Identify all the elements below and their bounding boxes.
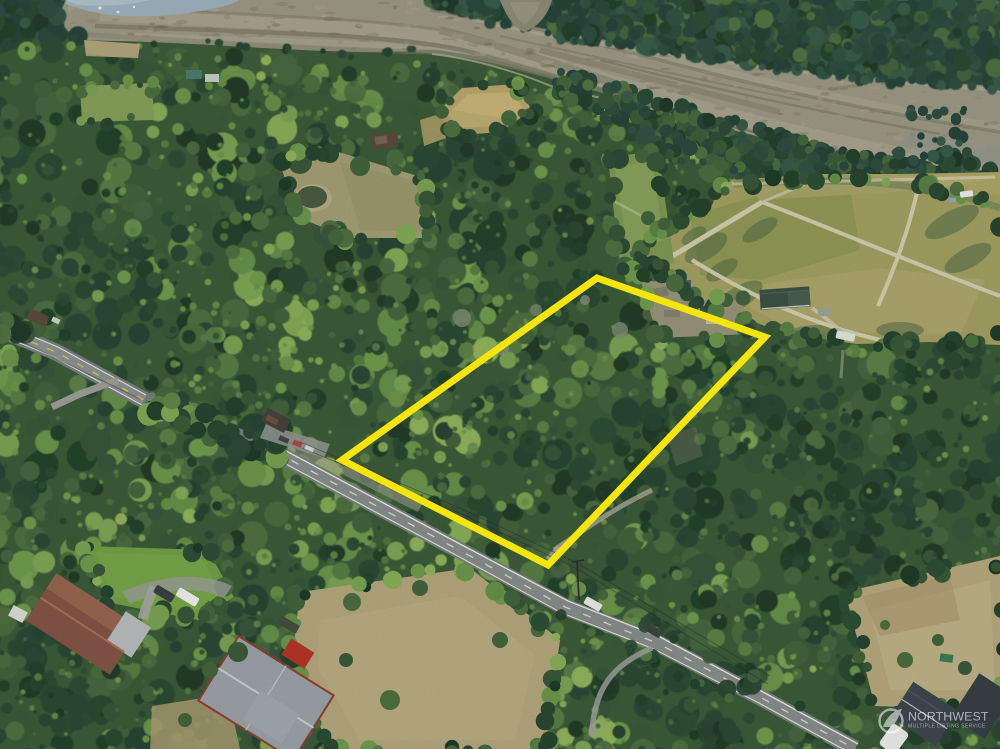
svg-text:NORTHWEST: NORTHWEST — [908, 710, 989, 724]
svg-text:MULTIPLE LISTING SERVICE: MULTIPLE LISTING SERVICE — [908, 724, 986, 730]
